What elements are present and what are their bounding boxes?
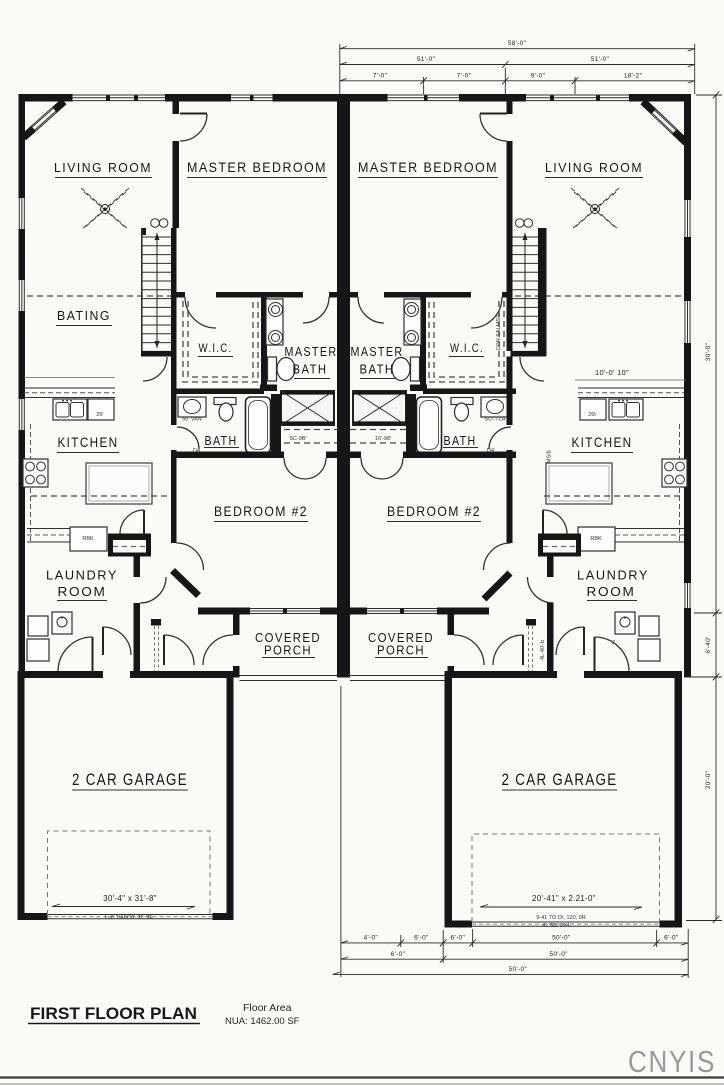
svg-text:50'-0": 50'-0" (509, 966, 528, 973)
svg-text:KITCHEN: KITCHEN (572, 434, 633, 450)
svg-text:PORCH: PORCH (264, 643, 312, 658)
svg-text:LAUNDRY: LAUNDRY (577, 568, 649, 583)
svg-text:4L-40'-b: 4L-40'-b (540, 640, 546, 660)
svg-text:FIRST FLOOR PLAN: FIRST FLOOR PLAN (30, 1005, 197, 1023)
svg-text:BATH: BATH (293, 363, 328, 377)
svg-text:RBK: RBK (590, 536, 602, 542)
svg-text:16'-98': 16'-98' (375, 436, 391, 442)
svg-text:MASTER: MASTER (285, 345, 338, 359)
svg-text:4!. 5B. 8V4: 4!. 5B. 8V4 (542, 923, 569, 929)
svg-text:50'-0": 50'-0" (549, 951, 568, 958)
svg-text:6'-0": 6'-0" (451, 935, 466, 942)
svg-text:SO'-7ZA: SO'-7ZA (485, 417, 506, 423)
svg-text:4'-0": 4'-0" (364, 935, 379, 942)
svg-text:50'-0": 50'-0" (552, 935, 571, 942)
svg-text:PORCH: PORCH (377, 643, 425, 658)
svg-text:CNYIS: CNYIS (628, 1044, 716, 1079)
svg-text:18'-2": 18'-2" (624, 73, 643, 80)
svg-text:6'-40': 6'-40' (705, 636, 712, 653)
svg-text:9'-0": 9'-0" (531, 73, 546, 80)
svg-text:10'-0' 10": 10'-0' 10" (595, 368, 629, 377)
svg-text:Lu6 1/A6O0: 92: 9E: Lu6 1/A6O0: 92: 9E (105, 915, 154, 921)
svg-text:W.I.C.: W.I.C. (199, 341, 233, 355)
svg-text:30'-0": 30'-0" (705, 342, 712, 361)
svg-text:6'-0": 6'-0" (414, 935, 429, 942)
svg-text:BATING: BATING (57, 308, 111, 323)
svg-text:7'-0": 7'-0" (457, 73, 472, 80)
svg-text:LAUNDRY: LAUNDRY (46, 568, 118, 583)
svg-text:KITCHEN: KITCHEN (58, 434, 119, 450)
svg-text:6'-0": 6'-0" (664, 935, 679, 942)
svg-text:9-41 7O O/, 120, 0R: 9-41 7O O/, 120, 0R (536, 915, 586, 921)
svg-text:MASTER BEDROOM: MASTER BEDROOM (358, 159, 498, 175)
svg-text:ROOM: ROOM (587, 584, 636, 599)
svg-text:NUA: 1462.00 SF: NUA: 1462.00 SF (225, 1016, 300, 1027)
svg-text:26': 26' (96, 412, 103, 418)
svg-text:2: 2 (612, 640, 615, 646)
svg-text:51'-0": 51'-0" (591, 56, 610, 63)
svg-text:ROOM: ROOM (58, 584, 107, 599)
svg-text:BATH: BATH (205, 434, 238, 448)
svg-text:51'-0": 51'-0" (417, 56, 436, 63)
svg-text:BATH: BATH (444, 434, 477, 448)
svg-text:6'-0": 6'-0" (391, 951, 406, 958)
svg-text:Floor Area: Floor Area (243, 1002, 292, 1014)
svg-text:BATH: BATH (360, 363, 395, 377)
svg-text:W.I.C.: W.I.C. (450, 341, 484, 355)
svg-text:BEDROOM #2: BEDROOM #2 (387, 503, 481, 519)
svg-text:2 CAR GARAGE: 2 CAR GARAGE (502, 771, 618, 789)
svg-text:BEDROOM #2: BEDROOM #2 (214, 503, 308, 519)
svg-text:58'-0": 58'-0" (508, 40, 527, 47)
svg-text:2 CAR GARAGE: 2 CAR GARAGE (72, 771, 188, 789)
svg-text:7'-0": 7'-0" (373, 73, 388, 80)
svg-text:30'-4" x 31'-8": 30'-4" x 31'-8" (103, 894, 157, 903)
svg-text:LIVING ROOM: LIVING ROOM (545, 160, 643, 175)
svg-text:26t: 26t (588, 412, 596, 418)
svg-text:20'-41" x 2.21-0": 20'-41" x 2.21-0" (532, 894, 596, 903)
svg-text:MASTER BEDROOM: MASTER BEDROOM (187, 159, 327, 175)
svg-text:LIVING ROOM: LIVING ROOM (54, 160, 152, 175)
svg-text:20'-0": 20'-0" (705, 770, 712, 789)
svg-text:50' VAN: 50' VAN (182, 417, 202, 423)
svg-text:SC-9B': SC-9B' (289, 436, 306, 442)
svg-text:MASTER: MASTER (351, 345, 404, 359)
svg-text:RBK: RBK (82, 536, 94, 542)
